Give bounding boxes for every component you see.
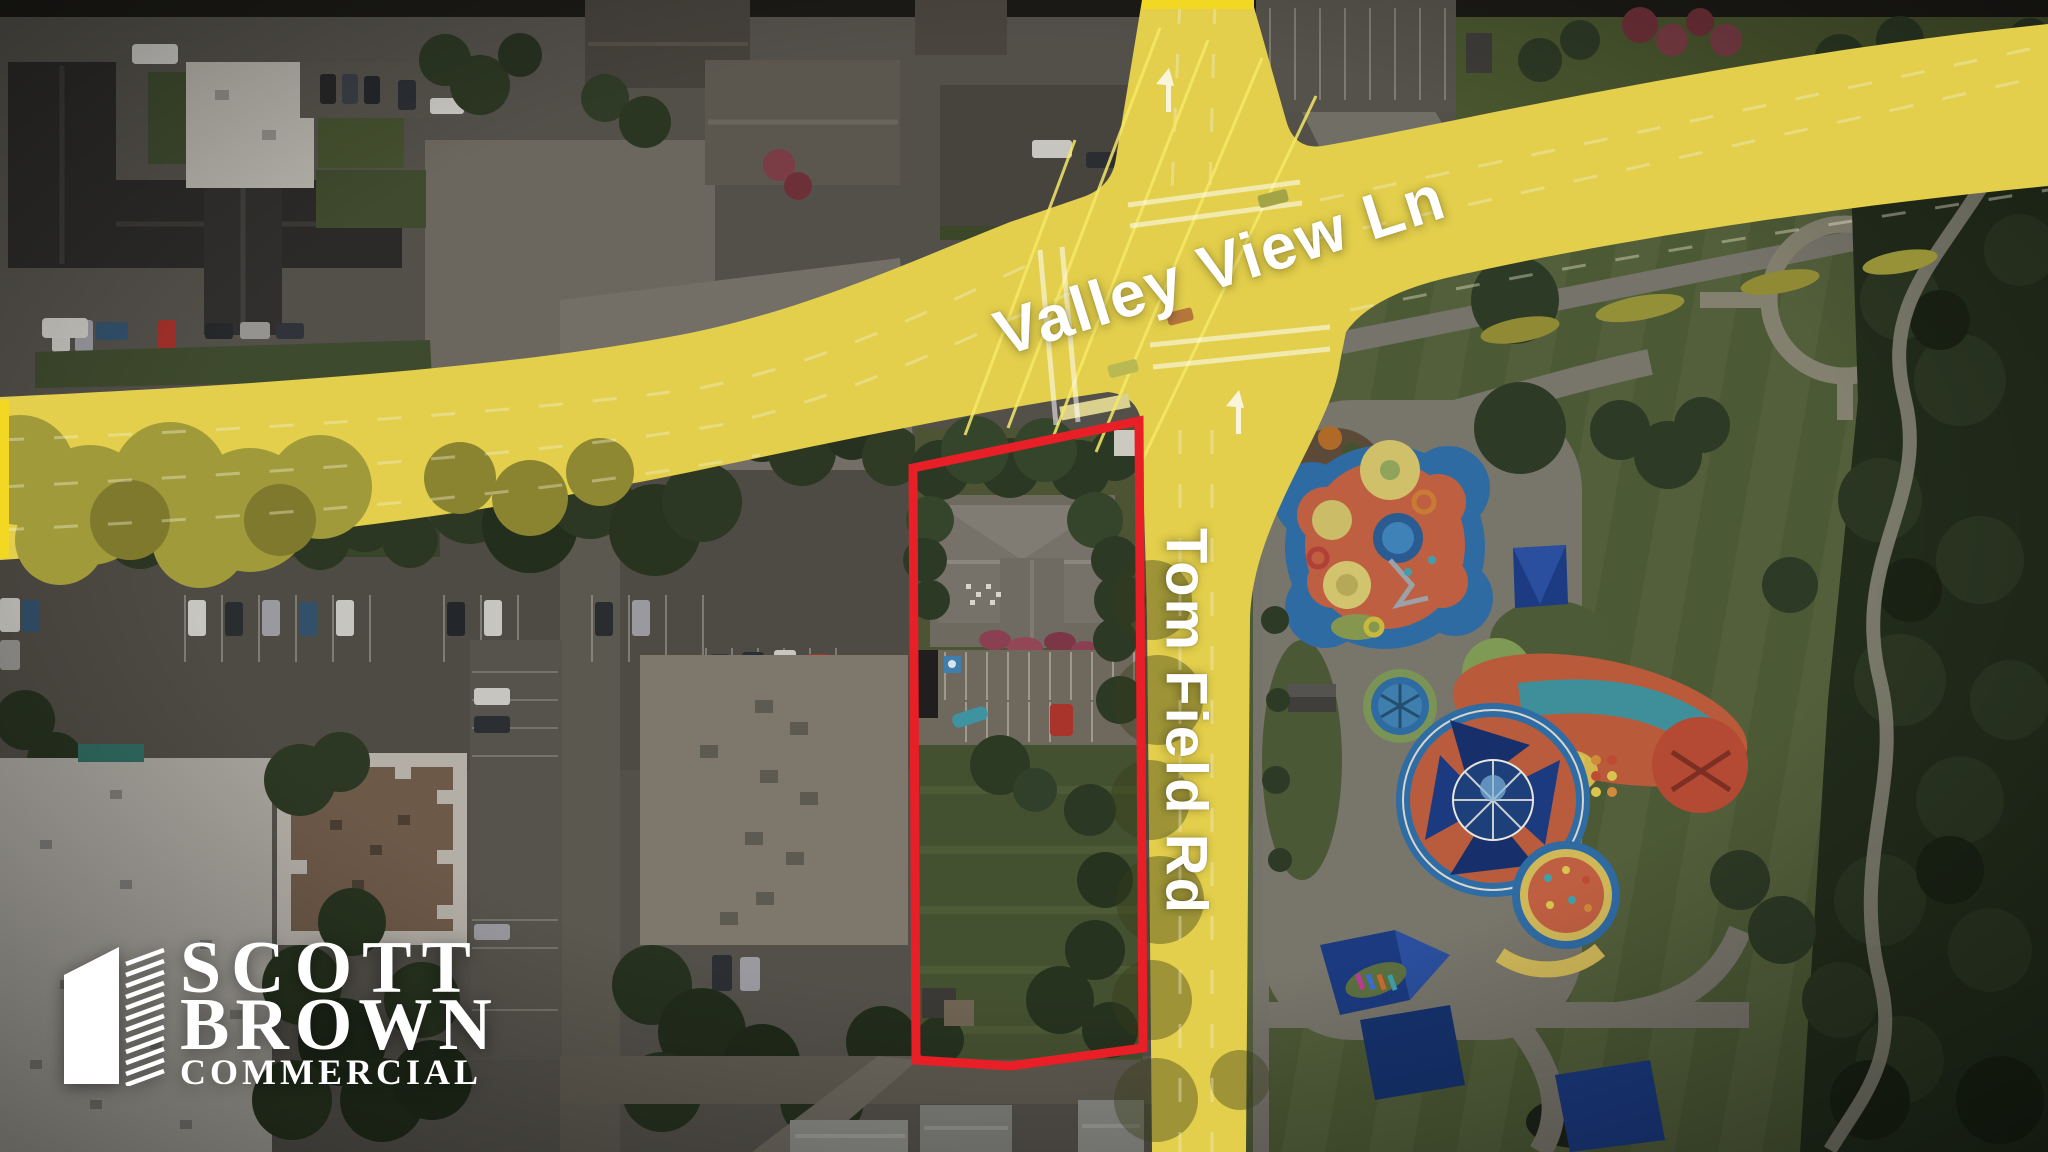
logo-text-block: SCOTT BROWN COMMERCIAL	[180, 940, 498, 1092]
scott-brown-commercial-logo: SCOTT BROWN COMMERCIAL	[56, 940, 498, 1092]
aerial-site-map: Valley View Ln Tom Field Rd SCOTT BROWN …	[0, 0, 2048, 1152]
road-label-tom-field-rd: Tom Field Rd	[1153, 512, 1220, 932]
logo-text-brown: BROWN	[180, 998, 498, 1052]
scott-brown-building-icon	[56, 940, 168, 1086]
logo-text-commercial: COMMERCIAL	[180, 1052, 498, 1092]
